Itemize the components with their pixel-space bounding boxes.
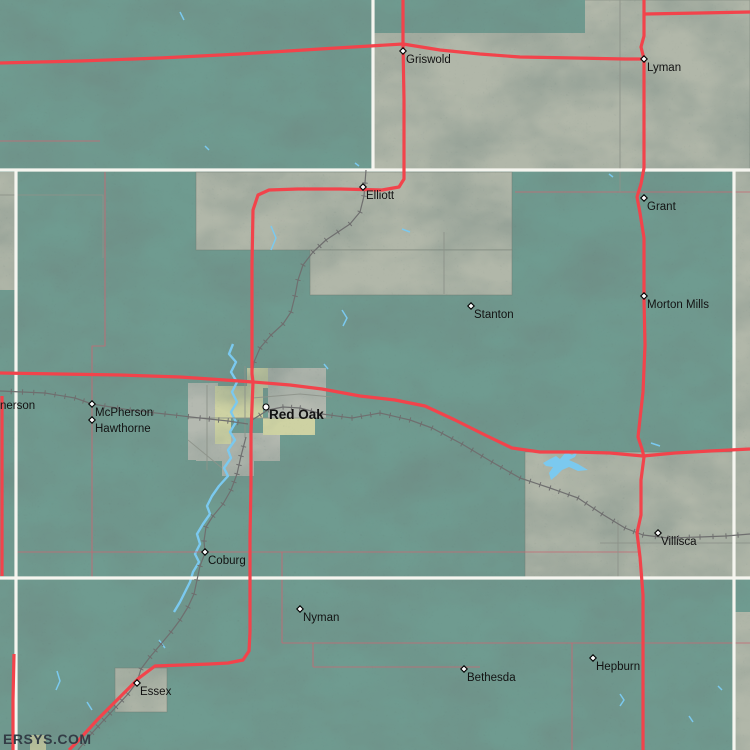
map-viewport[interactable]: GriswoldLymanElliottGrantStantonMorton M…: [0, 0, 750, 750]
town-label-red-oak[interactable]: Red Oak: [269, 407, 324, 422]
town-label-nyman[interactable]: Nyman: [303, 612, 339, 624]
highway: [645, 12, 750, 14]
town-label-elliott[interactable]: Elliott: [366, 190, 395, 202]
town-red-oak[interactable]: Red Oak: [263, 404, 324, 422]
town-label-bethesda[interactable]: Bethesda: [467, 672, 516, 684]
partial-town-label: nerson: [0, 400, 35, 412]
town-label-hawthorne[interactable]: Hawthorne: [95, 423, 151, 435]
town-label-mcpherson[interactable]: McPherson: [95, 407, 153, 419]
town-label-stanton[interactable]: Stanton: [474, 309, 514, 321]
town-label-coburg[interactable]: Coburg: [208, 555, 246, 567]
town-label-hepburn[interactable]: Hepburn: [596, 661, 640, 673]
town-label-grant[interactable]: Grant: [647, 201, 677, 213]
town-label-villisca[interactable]: Villisca: [661, 536, 697, 548]
town-label-lyman[interactable]: Lyman: [647, 62, 681, 74]
watermark: ERSYS.COM: [3, 731, 92, 747]
town-label-griswold[interactable]: Griswold: [406, 54, 451, 66]
map-canvas[interactable]: GriswoldLymanElliottGrantStantonMorton M…: [0, 0, 750, 750]
town-label-morton-mills[interactable]: Morton Mills: [647, 299, 709, 311]
map-feature-layers: GriswoldLymanElliottGrantStantonMorton M…: [0, 0, 750, 750]
town-label-essex[interactable]: Essex: [140, 686, 172, 698]
